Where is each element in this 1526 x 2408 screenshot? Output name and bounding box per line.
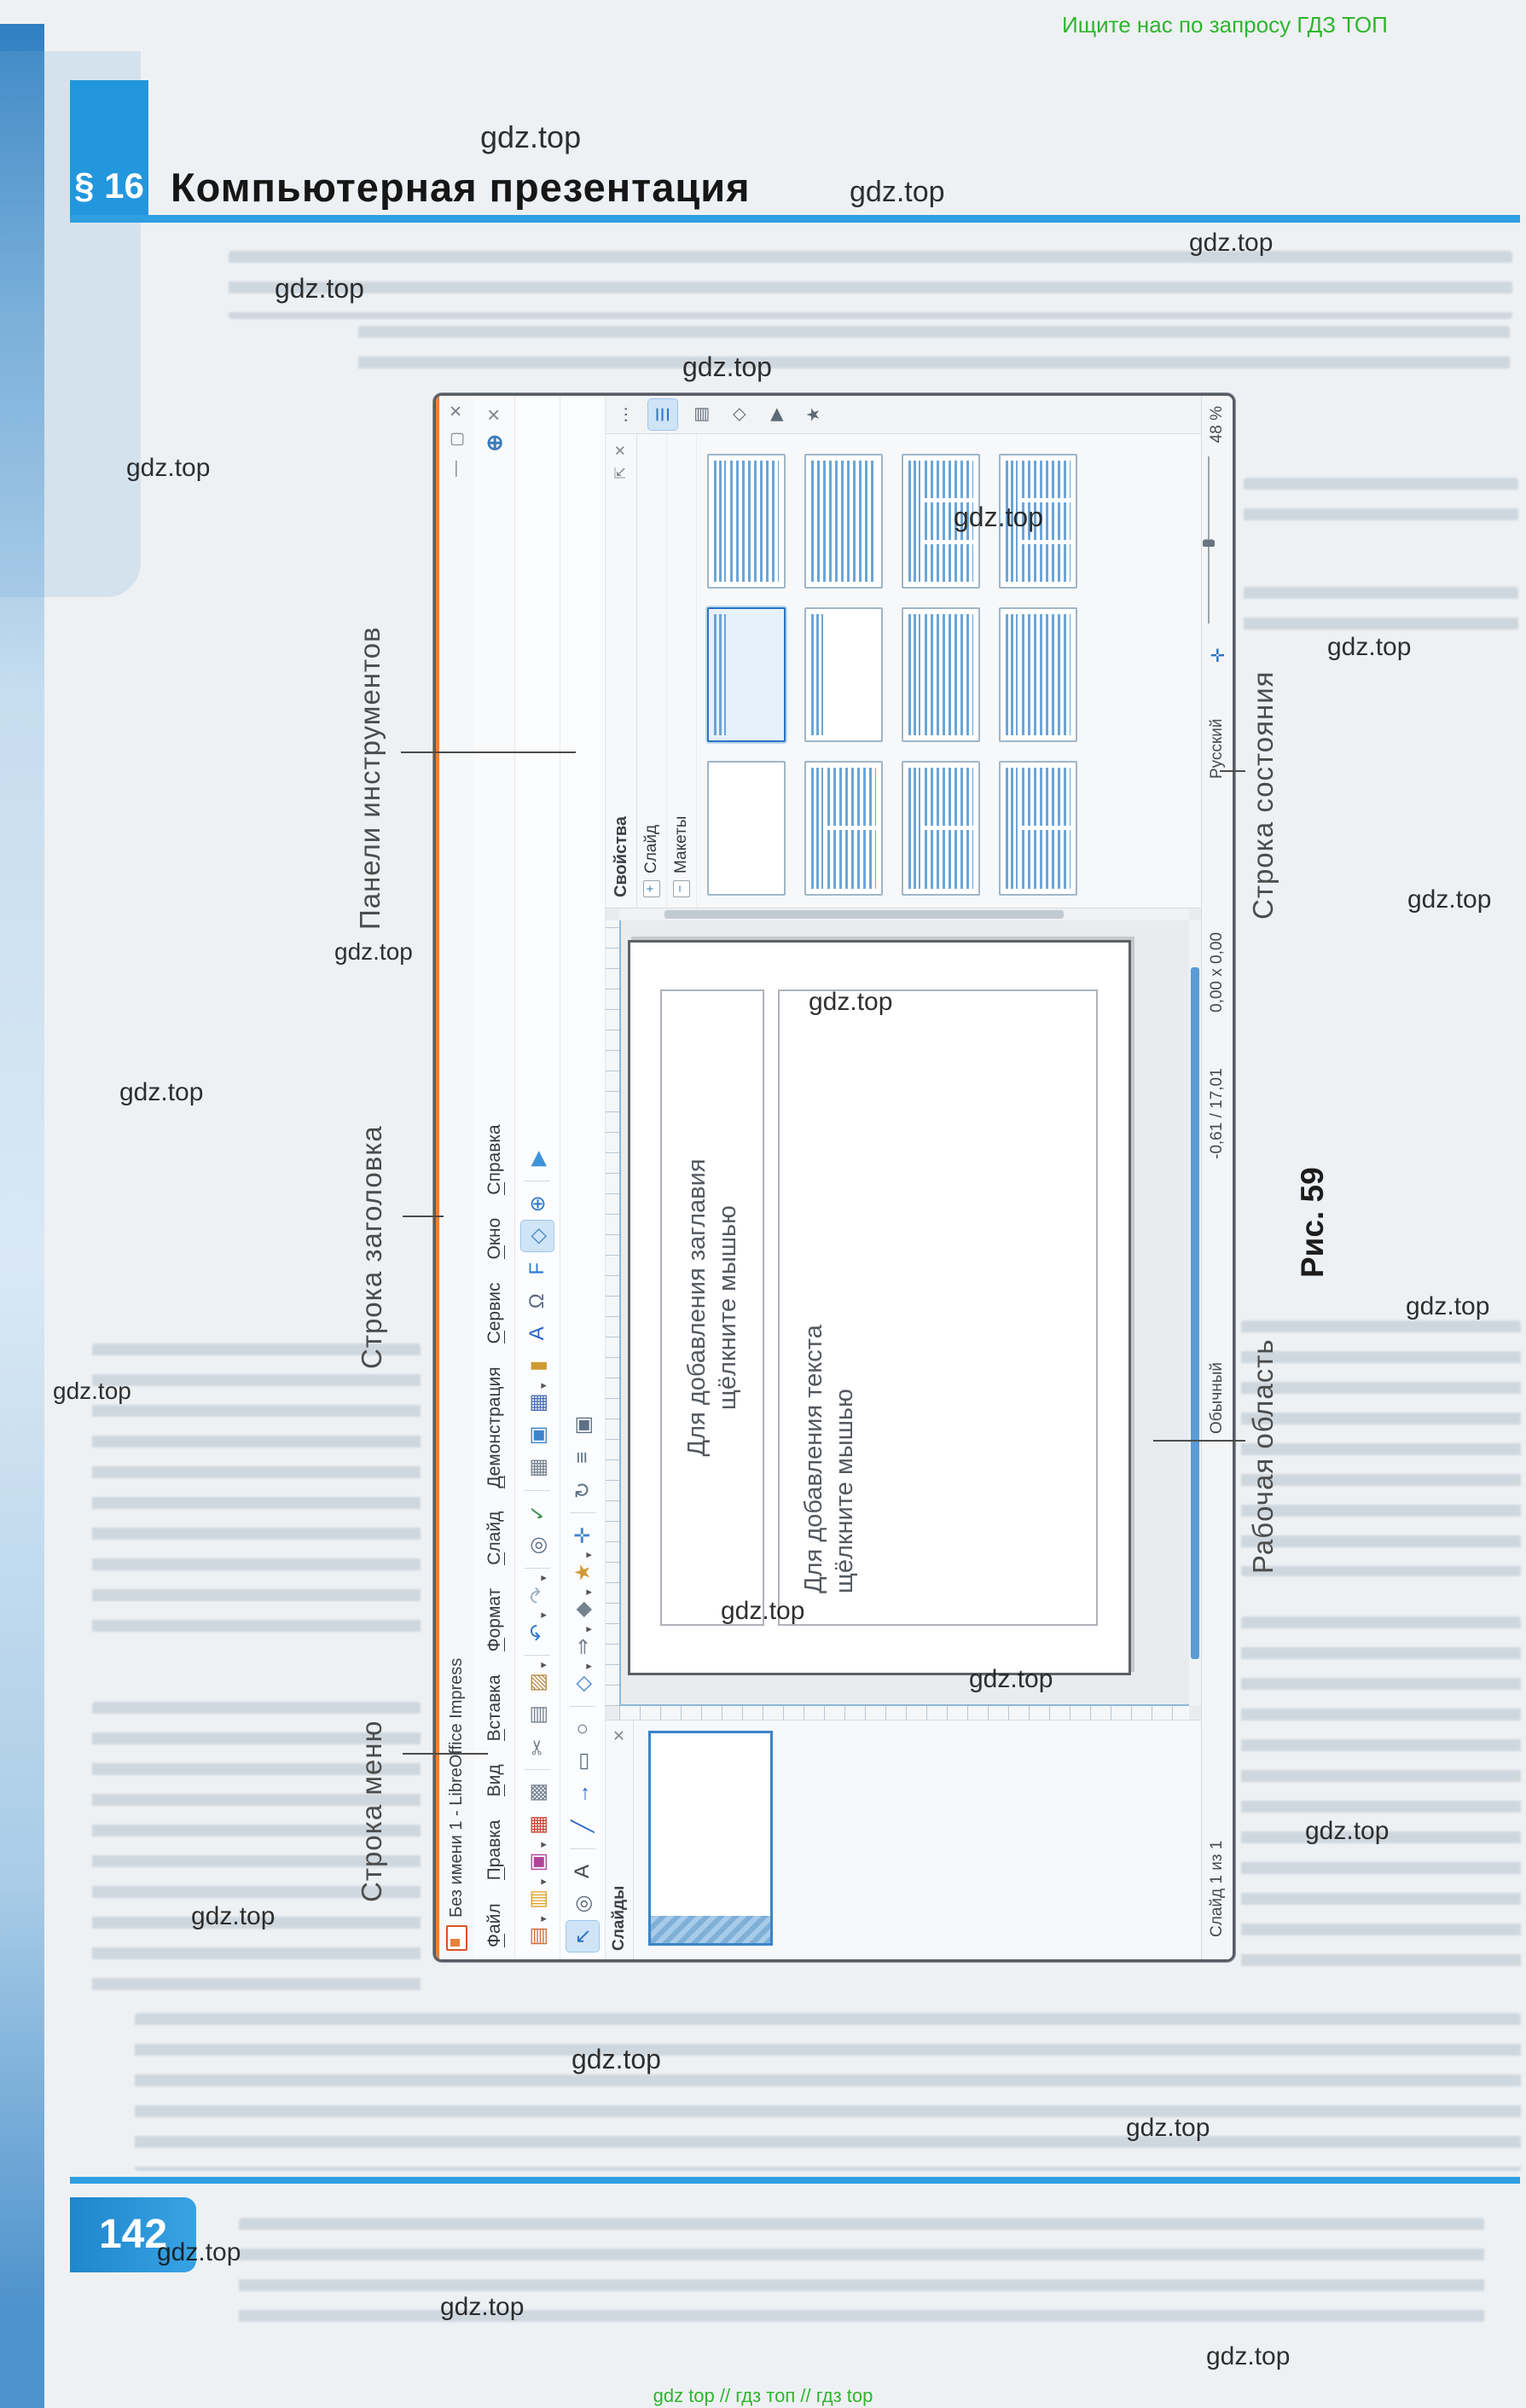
zoom-icon[interactable]: ◎ [566, 1889, 599, 1919]
menu-item-справка[interactable]: Справка [484, 1124, 505, 1194]
status-slide-count: Слайд 1 из 1 [1208, 1841, 1227, 1937]
toolbar-separator [525, 1655, 550, 1656]
toolbar-separator [525, 1769, 550, 1770]
watermark: gdz.top [119, 1078, 203, 1107]
insert-chart-icon[interactable]: ▮ [521, 1350, 554, 1381]
menu-item-вставка[interactable]: Вставка [484, 1674, 505, 1741]
watermark: gdz.top [1189, 229, 1273, 258]
callout-line-statusbar [1220, 770, 1245, 772]
standard-toolbar: ▤▾▥▾▣▾▦▩✂▤▨▾↶▾↷▾◎✓▦▣▦▾▮AΩF◇⊕▶ [515, 396, 560, 1959]
horizontal-ruler [606, 920, 621, 1706]
watermark: gdz.top [1126, 2114, 1210, 2143]
watermark: gdz.top [1327, 633, 1411, 662]
zoom-slider[interactable] [1208, 456, 1210, 624]
dropdown-arrow-icon[interactable]: ▾ [582, 1552, 595, 1558]
toolbar-separator [525, 1181, 550, 1181]
watermark: gdz.top [1305, 1817, 1389, 1846]
transitions-tab-icon[interactable]: ▤ [686, 399, 715, 430]
line-icon[interactable]: ╱ [566, 1811, 599, 1842]
properties-tab-icon[interactable]: ☰ [648, 399, 677, 430]
ghost-text-block [135, 2013, 1521, 2171]
arrange-icon[interactable]: ▣ [566, 1410, 599, 1441]
window-title: Без имени 1 - LibreOffice Impress [447, 1658, 467, 1918]
sidebar-section-макеты[interactable]: −Макеты [667, 434, 697, 908]
fontwork-icon[interactable]: F [521, 1253, 554, 1284]
title-bar: Без имени 1 - LibreOffice Impress — ▢ ✕ [436, 396, 474, 1959]
dropdown-arrow-icon[interactable]: ▾ [582, 1627, 595, 1633]
status-object-size: 0,00 x 0,00 [1208, 932, 1227, 1013]
insert-table-icon[interactable]: ▦ [521, 1388, 554, 1419]
close-icon[interactable]: ✕ [447, 404, 467, 418]
callout-line-menubar [403, 1753, 488, 1755]
master-slides-tab-icon[interactable]: ▶ [761, 399, 790, 430]
toolbar-separator [570, 1512, 595, 1513]
basic-shapes-icon[interactable]: ◇ [566, 1668, 599, 1699]
watermark: gdz.top [126, 454, 210, 483]
update-available-icon[interactable]: ⊕ [482, 434, 508, 452]
section-tab: § 16 [70, 80, 148, 218]
menu-item-окно[interactable]: Окно [484, 1218, 505, 1260]
ghost-text-block [1241, 1320, 1521, 1576]
spelling-icon[interactable]: ✓ [521, 1498, 554, 1529]
dropdown-arrow-icon[interactable]: ▾ [537, 1612, 550, 1618]
watermark: gdz.top [1407, 885, 1491, 914]
gallery-tab-icon[interactable]: ★ [798, 399, 827, 430]
sidebar-section-слайд[interactable]: +Слайд [637, 434, 667, 908]
figure-rotated-screenshot: Без имени 1 - LibreOffice Impress — ▢ ✕ … [433, 398, 1230, 1962]
vertical-scrollbar[interactable] [619, 908, 1189, 920]
expander-icon[interactable]: − [673, 880, 690, 897]
expander-icon[interactable]: + [643, 880, 660, 897]
watermark: gdz.top [480, 119, 581, 155]
figure-caption: Рис. 59 [1295, 1150, 1331, 1278]
select-icon[interactable]: ↖ [566, 1921, 599, 1952]
watermark: gdz.top [682, 351, 772, 383]
slides-panel: Слайды ✕ [606, 1720, 1201, 1959]
grid-icon[interactable]: ▦ [521, 1453, 554, 1483]
status-view-mode: Обычный [1208, 1362, 1227, 1434]
open-icon[interactable]: ▥ [521, 1883, 554, 1914]
toolbar-separator [570, 1706, 595, 1707]
save-icon[interactable]: ▣ [521, 1847, 554, 1877]
callout-toolbars: Панели инструментов [354, 589, 386, 930]
toolbar-separator [525, 1568, 550, 1569]
undo-icon[interactable]: ↶ [521, 1617, 554, 1648]
watermark: gdz.top [850, 176, 945, 209]
show-draw-functions-icon[interactable]: ◇ [521, 1221, 554, 1251]
undock-sidebar-icon[interactable]: ⇱ [612, 467, 630, 479]
vertical-ruler [619, 1704, 1189, 1720]
flowchart-icon[interactable]: ◆ [566, 1594, 599, 1625]
menu-item-формат[interactable]: Формат [484, 1588, 505, 1652]
insert-image-icon[interactable]: ▣ [521, 1420, 554, 1451]
dropdown-arrow-icon[interactable]: ▾ [537, 1383, 550, 1389]
dropdown-arrow-icon[interactable]: ▾ [537, 1842, 550, 1848]
status-bar: Слайд 1 из 1 Обычный -0,61 / 17,01 0,00 … [1201, 396, 1233, 1959]
export-pdf-icon[interactable]: ▦ [521, 1809, 554, 1840]
slide-canvas[interactable]: Для добавления заглавия щёлкните мышью Д… [628, 940, 1131, 1675]
menu-item-демонстрация[interactable]: Демонстрация [484, 1366, 505, 1488]
slides-panel-close-icon[interactable]: ✕ [611, 1729, 629, 1742]
ghost-text-block [229, 251, 1512, 319]
slide-1-thumbnail[interactable] [648, 1731, 773, 1946]
toolbar-separator [525, 1490, 550, 1491]
rotate-icon[interactable]: ↻ [566, 1475, 599, 1506]
workspace: Для добавления заглавия щёлкните мышью Д… [606, 908, 1201, 1720]
watermark: gdz.top [53, 1378, 131, 1405]
arrow-icon[interactable]: → [566, 1778, 599, 1809]
callout-menubar: Строка меню [356, 1646, 388, 1902]
redo-icon[interactable]: ↷ [521, 1580, 554, 1610]
outline-placeholder[interactable]: Для добавления текста щёлкните мышью [778, 989, 1098, 1626]
section-number: § 16 [70, 165, 148, 206]
watermark: gdz.top [721, 1597, 804, 1626]
callout-line-titlebar [403, 1216, 444, 1217]
menu-item-слайд[interactable]: Слайд [484, 1512, 505, 1565]
layout-thumbnail-3[interactable] [707, 454, 786, 589]
layout-thumbnail-11[interactable] [999, 607, 1077, 742]
page-title: Компьютерная презентация [171, 164, 751, 211]
ghost-text-block [92, 1343, 421, 1638]
dropdown-arrow-icon[interactable]: ▾ [537, 1879, 550, 1885]
libreoffice-impress-window: Без имени 1 - LibreOffice Impress — ▢ ✕ … [433, 393, 1235, 1962]
layout-thumbnail-1[interactable] [707, 761, 786, 896]
dropdown-arrow-icon[interactable]: ▾ [582, 1663, 595, 1669]
text-box-icon[interactable]: A [566, 1856, 599, 1887]
watermark: gdz.top [157, 2238, 241, 2267]
print-icon[interactable]: ▩ [521, 1777, 554, 1807]
callout-line-toolbars [401, 751, 576, 753]
watermark: gdz.top [440, 2293, 524, 2322]
status-zoom-level: 48 % [1208, 406, 1227, 443]
insert-textbox-icon[interactable]: A [521, 1318, 554, 1349]
layout-thumbnail-8[interactable] [902, 607, 980, 742]
status-cursor-position: -0,61 / 17,01 [1208, 1068, 1227, 1159]
maximize-icon[interactable]: ▢ [447, 432, 467, 447]
menu-item-сервис[interactable]: Сервис [484, 1283, 505, 1344]
rectangle-icon[interactable]: ▭ [566, 1746, 599, 1777]
menu-bar: ФайлПравкаВидВставкаФорматСлайдДемонстра… [474, 396, 515, 1959]
copy-icon[interactable]: ▤ [521, 1699, 554, 1730]
watermark: gdz.top [275, 273, 364, 305]
dropdown-arrow-icon[interactable]: ▾ [582, 1589, 595, 1595]
layout-thumbnail-2[interactable] [707, 607, 786, 742]
drawing-toolbar: ↖◎A╱→▭○◇▾⇒▾◆▾★▾✛↻≡▣ [560, 396, 606, 1959]
find-replace-icon[interactable]: ◎ [521, 1530, 554, 1561]
footer-rule [70, 2177, 1520, 2184]
header-rule [70, 215, 1520, 223]
ghost-text-block [1241, 1616, 1521, 1983]
watermark: gdz.top [954, 502, 1043, 533]
dropdown-arrow-icon[interactable]: ▾ [537, 1662, 550, 1668]
watermark: gdz.top [334, 938, 413, 966]
ellipse-icon[interactable]: ○ [566, 1714, 599, 1744]
menu-item-правка[interactable]: Правка [484, 1819, 505, 1880]
watermark: gdz.top [1406, 1292, 1489, 1321]
dropdown-arrow-icon[interactable]: ▾ [537, 1575, 550, 1581]
callout-workarea: Рабочая область [1247, 1318, 1279, 1574]
block-arrows-icon[interactable]: ⇒ [566, 1631, 599, 1662]
watermark: gdz.top [809, 988, 892, 1017]
close-sidebar-icon[interactable]: ✕ [612, 444, 630, 456]
layout-thumbnail-4[interactable] [804, 761, 883, 896]
sidebar: Свойства ⇱ ✕ +Слайд−Макеты ⋯☰▤◇▶★ [606, 396, 1201, 908]
special-character-icon[interactable]: Ω [521, 1285, 554, 1316]
menu-item-файл[interactable]: Файл [484, 1903, 505, 1947]
dropdown-arrow-icon[interactable]: ▾ [537, 1916, 550, 1922]
hyperlink-icon[interactable]: ⊕ [521, 1188, 554, 1219]
callout-titlebar: Строка заголовка [356, 1062, 388, 1369]
align-icon[interactable]: ≡ [566, 1442, 599, 1473]
watermark: gdz.top [572, 2044, 661, 2075]
toolbar-separator [570, 1848, 595, 1849]
promo-header: Ищите нас по запросу ГДЗ ТОП [1062, 12, 1388, 38]
ghost-text-block [1244, 478, 1518, 531]
layout-thumbnail-5[interactable] [804, 607, 883, 742]
sidebar-deck-title: Свойства [612, 816, 631, 897]
sidebar-tab-strip: ⋯☰▤◇▶★ [606, 396, 1201, 434]
cut-icon[interactable]: ✂ [521, 1732, 554, 1762]
horizontal-scrollbar[interactable] [1189, 920, 1201, 1706]
layout-thumbnail-10[interactable] [999, 761, 1077, 896]
window-controls: — ▢ ✕ [447, 404, 467, 477]
paste-icon[interactable]: ▨ [521, 1667, 554, 1697]
book-page: Ищите нас по запросу ГДЗ ТОП § 16 Компью… [0, 0, 1526, 2408]
start-slideshow-icon[interactable]: ▶ [521, 1143, 554, 1174]
callout-line-workarea [1153, 1440, 1245, 1442]
ghost-text-block [239, 2218, 1484, 2329]
title-placeholder[interactable]: Для добавления заглавия щёлкните мышью [660, 989, 764, 1626]
minimize-icon[interactable]: — [447, 461, 467, 477]
watermark: gdz.top [191, 1902, 275, 1931]
fit-slide-icon[interactable]: ✛ [1208, 647, 1229, 663]
animation-tab-icon[interactable]: ◇ [723, 399, 752, 430]
stars-icon[interactable]: ★ [566, 1557, 599, 1587]
ghost-text-block [358, 326, 1510, 379]
layout-thumbnail-6[interactable] [804, 454, 883, 589]
close-document-icon[interactable]: ✕ [484, 408, 505, 422]
slides-panel-title: Слайды [610, 1886, 629, 1951]
new-document-icon[interactable]: ▤ [521, 1921, 554, 1952]
watermark: gdz.top [1206, 2342, 1290, 2371]
thumbnail-title-strip [651, 1916, 770, 1943]
impress-app-icon [446, 1925, 467, 1951]
menu-item-вид[interactable]: Вид [484, 1764, 505, 1796]
sidebar-settings-icon[interactable]: ⋯ [611, 399, 640, 430]
promo-footer: gdz top // гдз топ // гдз top [0, 2385, 1526, 2407]
layout-thumbnail-7[interactable] [902, 761, 980, 896]
glue-points-icon[interactable]: ✛ [566, 1520, 599, 1551]
watermark: gdz.top [969, 1665, 1053, 1694]
callout-statusbar: Строка состояния [1247, 638, 1279, 920]
